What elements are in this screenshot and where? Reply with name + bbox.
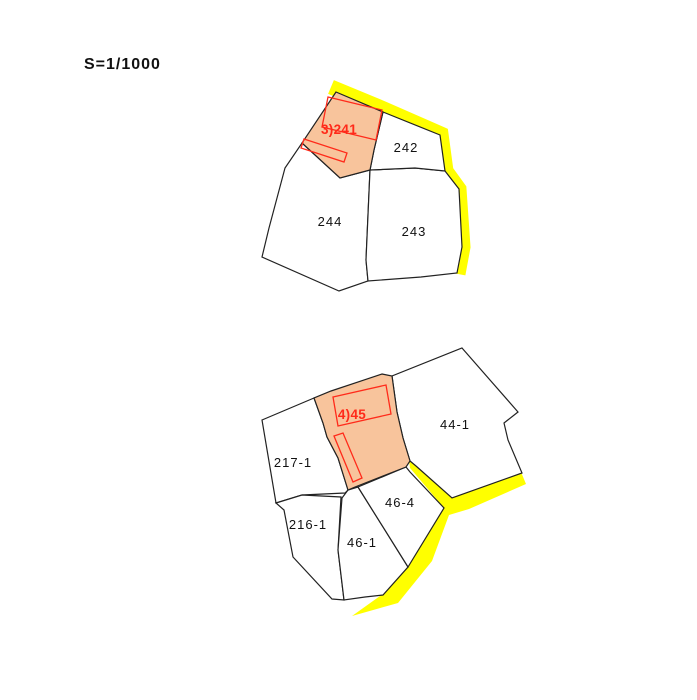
parcel-label-216-1: 216-1 (289, 517, 327, 532)
parcel-label-46-4: 46-4 (385, 495, 415, 510)
parcel-label-241: 3)241 (321, 122, 357, 137)
parcel-label-244: 244 (318, 214, 343, 229)
cadastral-map-canvas: S=1/1000 3)241 242 243 244 4)45 (0, 0, 697, 700)
parcel-label-45: 4)45 (338, 407, 366, 422)
parcel-label-217-1: 217-1 (274, 455, 312, 470)
lower-parcel-map: 4)45 44-1 217-1 216-1 46-1 46-4 (262, 348, 526, 616)
scale-label: S=1/1000 (84, 56, 161, 73)
parcel-label-44-1: 44-1 (440, 417, 470, 432)
parcel-label-243: 243 (402, 224, 427, 239)
parcel-label-242: 242 (394, 140, 419, 155)
parcel-216-1 (276, 495, 344, 600)
parcel-label-46-1: 46-1 (347, 535, 377, 550)
upper-parcel-map: 3)241 242 243 244 (262, 87, 463, 291)
